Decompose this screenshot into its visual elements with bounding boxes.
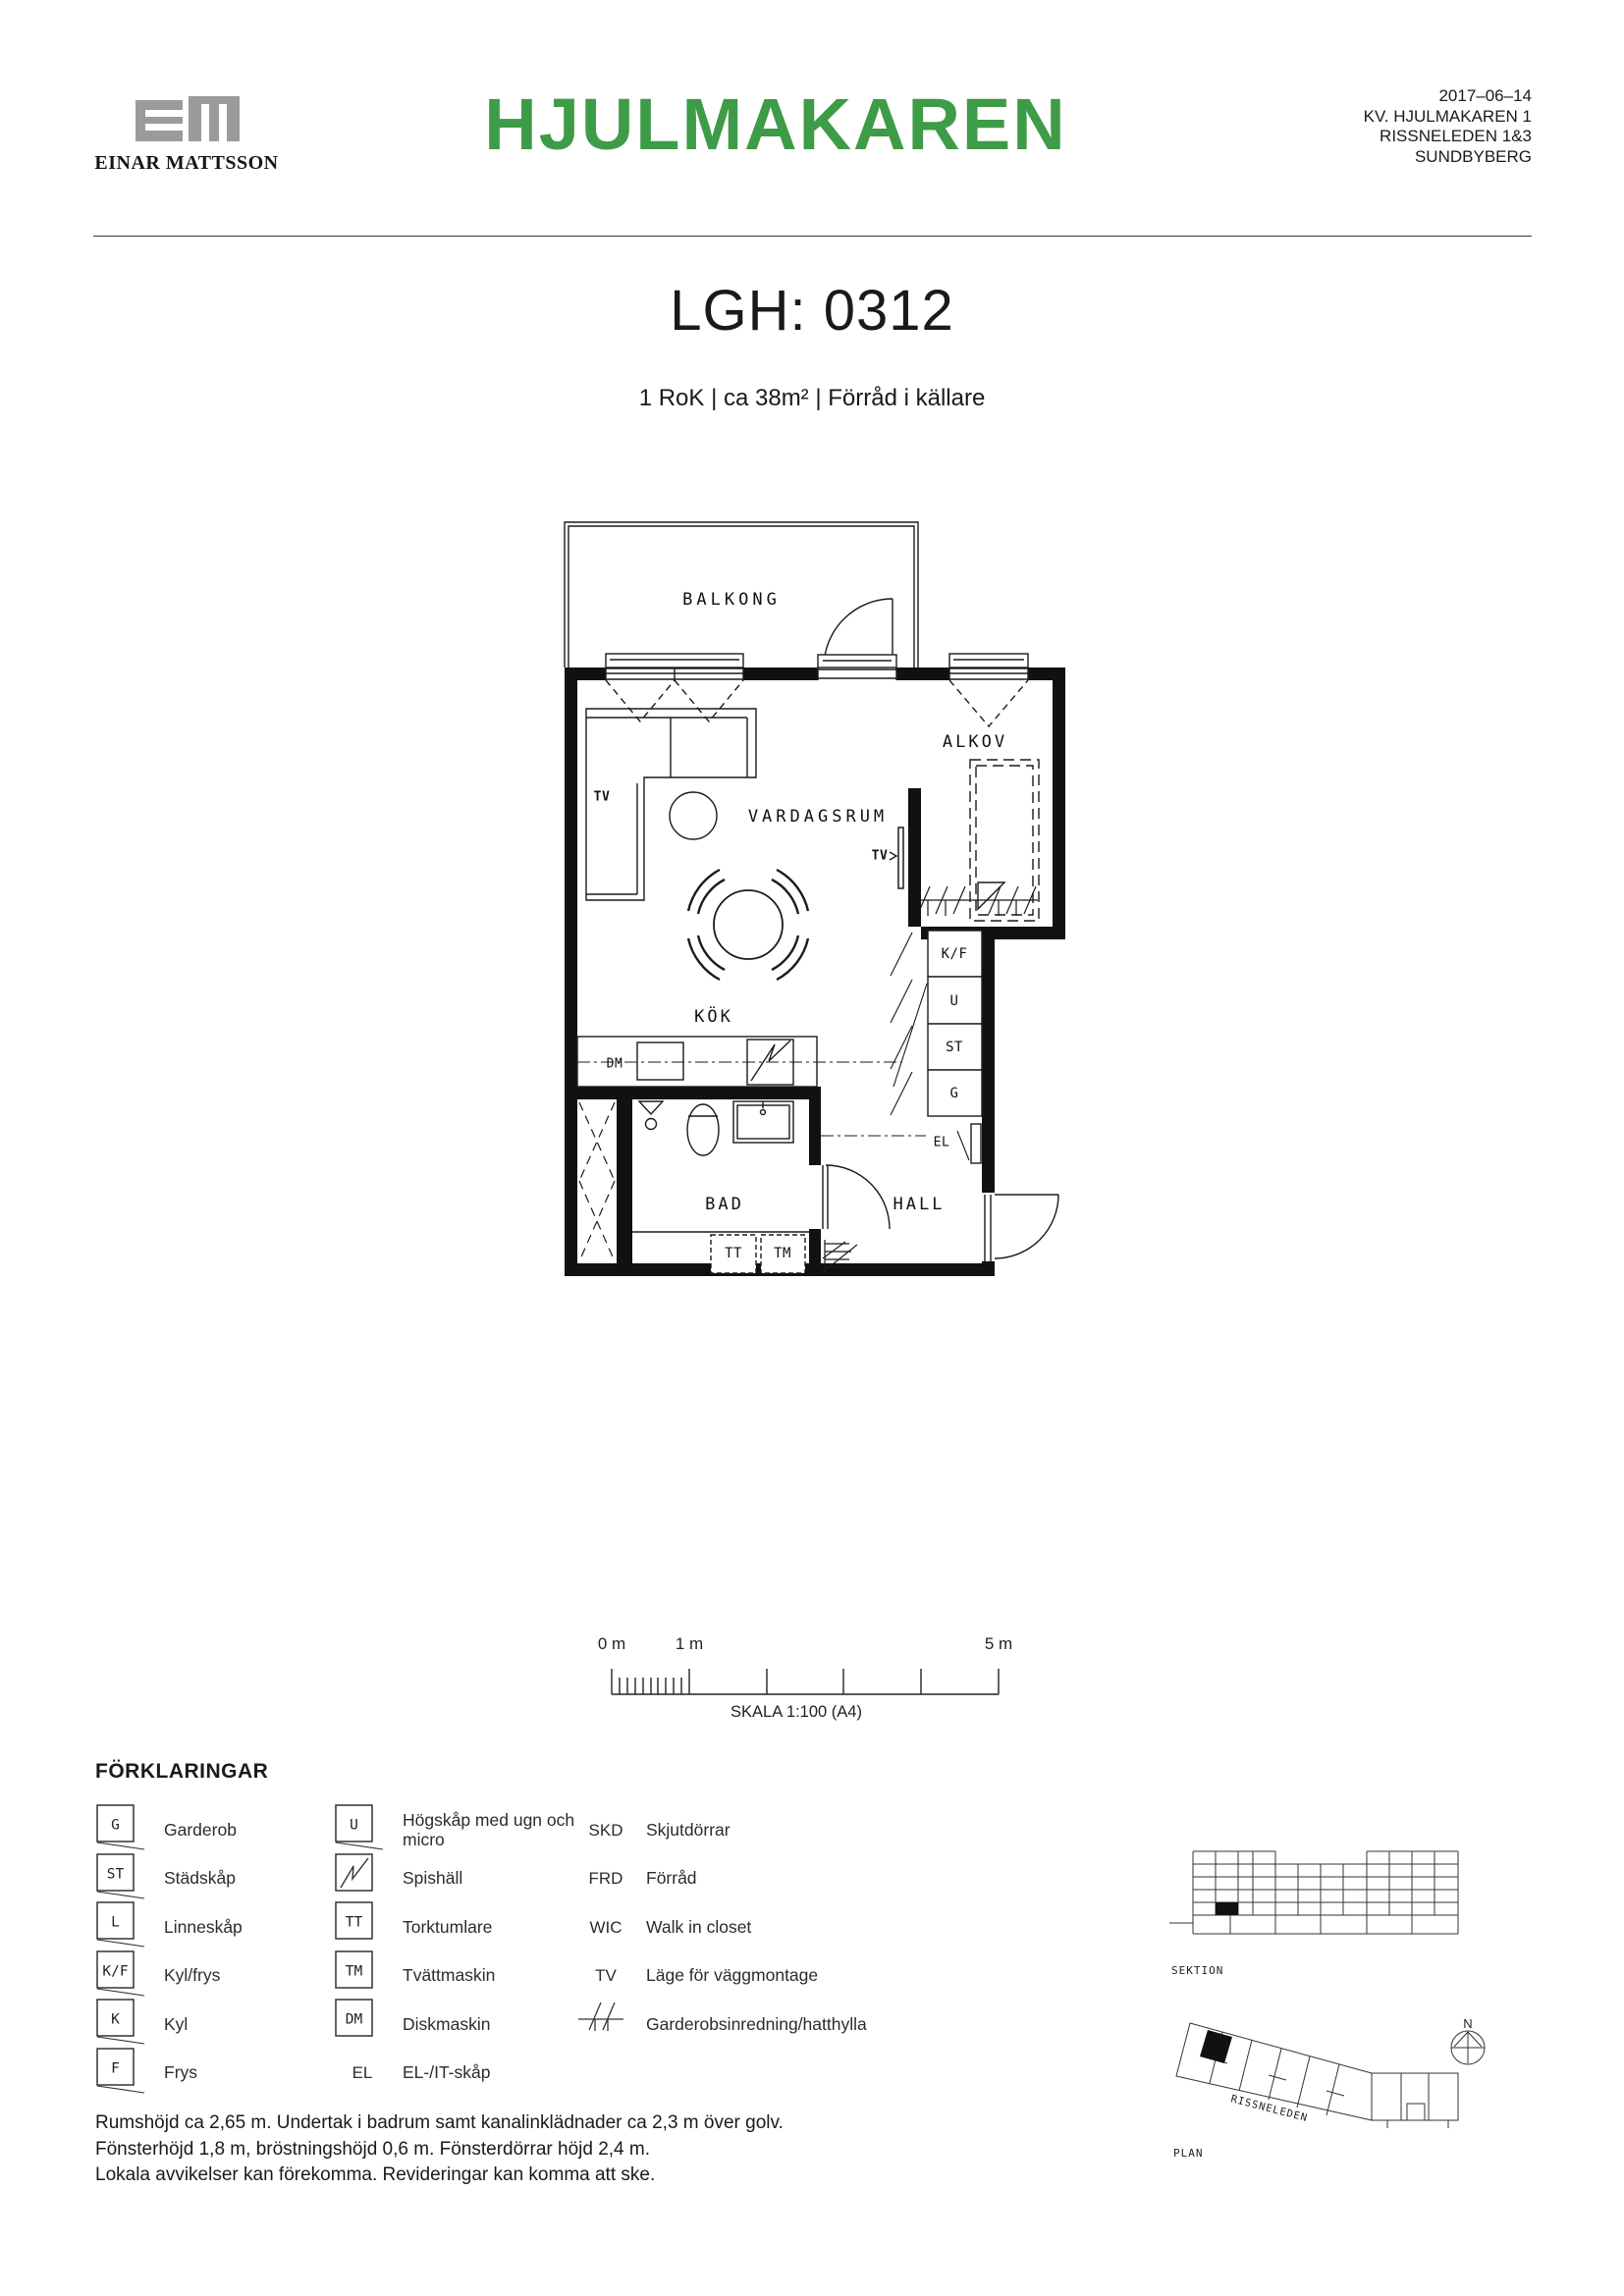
legend-item-label: Walk in closet [646,1918,823,1938]
sofa [586,709,756,900]
legend-item-skd: SKDSkjutdörrar [577,1806,823,1854]
legend-symbol-box-icon: DM [334,1998,391,2052]
legend-item-g: GGarderob [95,1806,341,1854]
plan-highlighted-apartment [1200,2030,1232,2063]
legend-symbol-box-icon: K [95,1998,152,2052]
legend: GGarderobSTStädskåpLLinneskåpK/FKyl/frys… [95,1806,1136,2110]
legend-abbrev: EL [334,2063,391,2083]
legend-abbrev: SKD [577,1821,634,1841]
scale-caption: SKALA 1:100 (A4) [731,1703,862,1721]
legend-abbrev: WIC [577,1918,634,1938]
svg-text:K/F: K/F [102,1963,128,1979]
legend-item-frd: FRDFörråd [577,1855,823,1903]
footnote-line-3: Lokala avvikelser kan förekomma. Revider… [95,2163,784,2189]
sektion-label: SEKTION [1171,1964,1223,1977]
legend-item-label: Förråd [646,1869,823,1889]
legend-symbol-box-icon: G [95,1803,152,1857]
legend-item-dm: DMDiskmaskin [334,2001,579,2049]
tall-cabinets [891,931,982,1116]
page-title: HJULMAKAREN [324,82,1227,166]
svg-text:F: F [111,2060,120,2076]
balcony-door-threshold [818,655,896,680]
sektion-diagram [1167,1843,1474,1953]
legend-symbol-box-icon: L [95,1900,152,1954]
legend-item-u: UHögskåp med ugn och micro [334,1806,579,1854]
plan-label: PLAN [1173,2147,1204,2160]
legend-item-label: Läge för väggmontage [646,1966,823,1986]
plan-label-kf: K/F [942,946,968,962]
floorplan-drawing [545,506,1095,1310]
legend-item-label: Skjutdörrar [646,1821,823,1841]
legend-symbol-box-icon: F [95,2047,152,2101]
legend-item-garderobsinredning-hatthylla: Garderobsinredning/hatthylla [577,2001,823,2049]
floorplan-sheet: EINAR MATTSSON HJULMAKAREN 2017–06–14KV.… [0,0,1624,2296]
plan-label-tt: TT [725,1246,742,1261]
legend-item-k: KKyl [95,2001,341,2049]
legend-item-el: ELEL-/IT-skåp [334,2050,579,2098]
plan-label-dm: DM [607,1057,623,1072]
legend-abbrev: TV [577,1966,634,1986]
svg-text:ST: ST [107,1866,125,1882]
scale-bar: 0 m 1 m 5 m SKALA 1:100 (A4) [587,1626,1029,1734]
legend-symbol-box-icon: TM [334,1949,391,2003]
legend-item-label: Städskåp [164,1869,341,1889]
kitchen-unit [637,1042,683,1080]
living-room-window [606,654,743,721]
legend-item-st: STStädskåp [95,1855,341,1903]
plan-label-g: G [950,1086,959,1101]
legend-item-l: LLinneskåp [95,1903,341,1951]
scale-0m: 0 m [598,1634,625,1653]
shaft [579,1102,615,1261]
bathroom-door [823,1165,890,1229]
legend-symbol-box-zigzag-icon [334,1852,391,1906]
washbasin [733,1101,793,1143]
toilet [687,1104,719,1155]
legend-symbol-box-icon: ST [95,1852,152,1906]
legend-item-wic: WICWalk in closet [577,1903,823,1951]
compass-icon [1451,2031,1485,2064]
el-cabinet [957,1124,981,1163]
side-table [670,792,717,839]
svg-text:TM: TM [346,1963,363,1979]
header-divider [93,236,1532,237]
plan-label-tv-alkov: TV [872,849,889,864]
sektion-highlighted-apartment [1216,1902,1238,1915]
svg-text:TT: TT [346,1915,363,1931]
legend-item-spish-ll: Spishäll [334,1855,579,1903]
entrance-door [985,1195,1058,1261]
legend-item-tv: TVLäge för väggmontage [577,1952,823,2001]
dining-table [714,890,783,959]
legend-item-label: Frys [164,2063,341,2083]
plan-label-vardagsrum: VARDAGSRUM [748,807,888,827]
plan-label-st: ST [946,1040,963,1055]
logo-name: EINAR MATTSSON [94,152,278,174]
plan-label-u: U [950,993,959,1009]
legend-item-label: Spishäll [403,1869,579,1889]
alkov-window [949,654,1028,726]
legend-item-label: Kyl [164,2015,341,2035]
svg-text:K: K [111,2012,120,2028]
info-line-0: 2017–06–14 [1364,86,1532,107]
plan-label-alkov: ALKOV [943,732,1007,752]
legend-abbrev: FRD [577,1869,634,1889]
alkov-partition-wall [908,788,921,927]
legend-item-label: Tvättmaskin [403,1966,579,1986]
legend-item-tm: TMTvättmaskin [334,1952,579,2001]
legend-item-label: Kyl/frys [164,1966,341,1986]
shower [639,1101,663,1130]
compass-north-label: N [1463,2016,1472,2031]
svg-text:DM: DM [346,2012,363,2028]
plan-label-el: EL [934,1136,950,1150]
legend-symbol-box-icon: TT [334,1900,391,1954]
plan-label-tv-vagg: TV [594,790,611,805]
bed [970,760,1039,921]
legend-item-label: Högskåp med ugn och micro [403,1811,579,1849]
scale-1m: 1 m [676,1634,703,1653]
plan-label-balkong: BALKONG [682,590,781,610]
plan-diagram: RISSNELEDEN PLAN N [1124,2002,1527,2169]
footnote-line-2: Fönsterhöjd 1,8 m, bröstningshöjd 0,6 m.… [95,2137,784,2163]
em-monogram-icon [135,96,240,141]
legend-item-label: Linneskåp [164,1918,341,1938]
legend-item-label: Diskmaskin [403,2015,579,2035]
legend-symbol-hatch-icon [577,1998,634,2052]
legend-heading: FÖRKLARINGAR [95,1760,268,1784]
legend-item-k-f: K/FKyl/frys [95,1952,341,2001]
legend-item-label: Garderob [164,1821,341,1841]
plan-label-hall: HALL [893,1195,946,1214]
plan-label-bad: BAD [705,1195,744,1214]
plan-label-kok: KÖK [694,1007,733,1027]
scale-5m: 5 m [985,1634,1012,1653]
legend-item-label: EL-/IT-skåp [403,2063,579,2083]
wall-tv [898,828,903,888]
floorplan: BALKONGVARDAGSRUMALKOVKÖKBADHALLTVTVDMK/… [545,506,1095,1310]
dining-chair-arrows [688,870,808,980]
footnote-line-1: Rumshöjd ca 2,65 m. Undertak i badrum sa… [95,2110,784,2137]
tv-direction-arrow-icon [890,852,896,860]
footnotes: Rumshöjd ca 2,65 m. Undertak i badrum sa… [95,2110,784,2189]
plan-label-tm: TM [774,1246,791,1261]
walls [565,667,1065,1276]
legend-item-f: FFrys [95,2050,341,2098]
project-info-block: 2017–06–14KV. HJULMAKAREN 1RISSNELEDEN 1… [1364,86,1532,168]
apartment-number: LGH: 0312 [0,278,1624,344]
legend-item-tt: TTTorktumlare [334,1903,579,1951]
apartment-facts: 1 RoK | ca 38m² | Förråd i källare [0,385,1624,412]
legend-symbol-box-icon: K/F [95,1949,152,2003]
info-line-2: RISSNELEDEN 1&3 [1364,127,1532,147]
info-line-3: SUNDBYBERG [1364,147,1532,168]
svg-text:L: L [111,1915,120,1931]
info-line-1: KV. HJULMAKAREN 1 [1364,107,1532,128]
legend-symbol-box-icon: U [334,1803,391,1857]
legend-item-label: Garderobsinredning/hatthylla [646,2015,823,2035]
svg-text:U: U [350,1818,358,1834]
svg-text:G: G [111,1818,120,1834]
legend-item-label: Torktumlare [403,1918,579,1938]
